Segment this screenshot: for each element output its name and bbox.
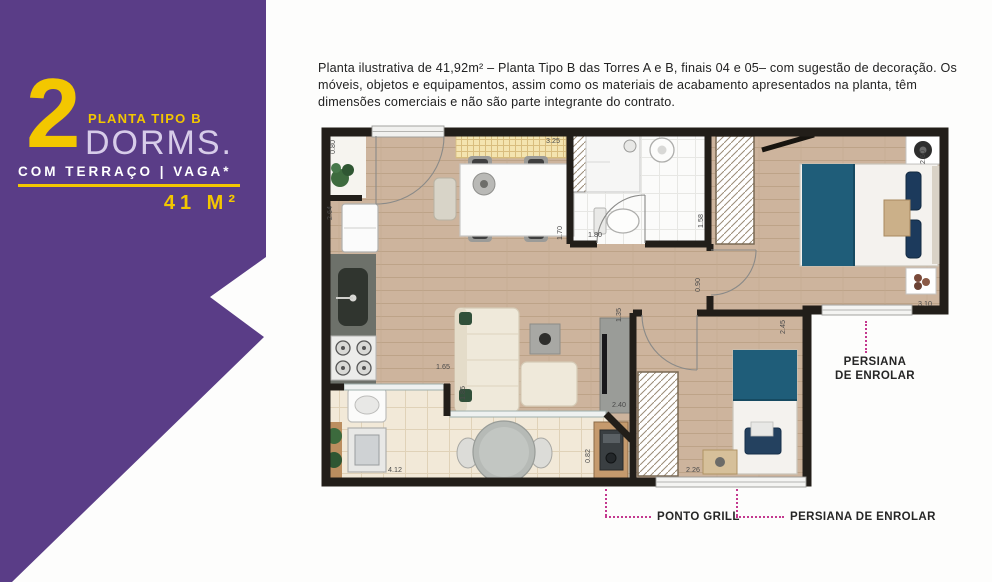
banner-subtitle: COM TERRAÇO | VAGA* bbox=[18, 164, 240, 179]
fridge bbox=[342, 204, 378, 252]
dorm-count: 2 bbox=[26, 64, 81, 162]
shower-head bbox=[624, 140, 636, 152]
dimension-label: 2.40 bbox=[612, 400, 626, 409]
wardrobe-bedroom2 bbox=[638, 372, 678, 476]
annotation-line: DE ENROLAR bbox=[810, 369, 940, 383]
annotation-persiana-bottom: PERSIANA DE ENROLAR bbox=[790, 511, 936, 523]
washing-machine bbox=[348, 428, 386, 472]
dimension-label: 4.12 bbox=[388, 465, 402, 474]
dimension-label: 0.90 bbox=[693, 278, 702, 292]
dimension-label: 1.58 bbox=[696, 214, 705, 228]
annotation-persiana-right: PERSIANA DE ENROLAR bbox=[810, 355, 940, 383]
disclaimer-text: Planta ilustrativa de 41,92m² – Planta T… bbox=[318, 60, 978, 111]
flower-table bbox=[906, 268, 936, 294]
promo-banner: 2 PLANTA TIPO B DORMS. COM TERRAÇO | VAG… bbox=[0, 0, 266, 582]
coffee-table bbox=[530, 324, 560, 354]
dimension-label: 2.64 bbox=[325, 206, 334, 220]
dimension-label: 2.60 bbox=[918, 150, 927, 164]
leader-line-persiana-bottom bbox=[736, 489, 738, 516]
dimension-label: 1.85 bbox=[458, 386, 467, 400]
leader-line-persiana-right bbox=[865, 321, 867, 353]
dimension-label: 3.10 bbox=[918, 299, 932, 308]
single-bed bbox=[733, 350, 797, 474]
annotation-ponto-grill: PONTO GRILL bbox=[657, 511, 740, 523]
dimension-label: 1.70 bbox=[555, 226, 564, 240]
stove bbox=[331, 336, 376, 380]
dimension-label: 1.65 bbox=[436, 362, 450, 371]
leader-line-ponto-grill bbox=[605, 516, 651, 518]
dimension-label: 0.82 bbox=[583, 449, 592, 463]
leader-line-persiana-bottom bbox=[736, 516, 784, 518]
dimension-label: 3.25 bbox=[546, 136, 560, 145]
leader-line-ponto-grill bbox=[605, 489, 607, 516]
wardrobe-master bbox=[716, 136, 754, 244]
annotation-line: PERSIANA bbox=[810, 355, 940, 369]
master-bed bbox=[800, 164, 940, 266]
tv-panel bbox=[600, 318, 630, 413]
area-label: 41 M² bbox=[18, 192, 240, 215]
dimension-label: 2.26 bbox=[686, 465, 700, 474]
dorms-title: DORMS. bbox=[85, 124, 233, 163]
dimension-label: 0.80 bbox=[328, 140, 337, 154]
shower-glass bbox=[572, 134, 586, 192]
banner-divider bbox=[18, 184, 240, 187]
laundry-sink bbox=[348, 388, 386, 422]
desk-bedroom2 bbox=[703, 450, 737, 474]
dimension-label: 1.35 bbox=[614, 308, 623, 322]
dimension-label: 2.45 bbox=[778, 320, 787, 334]
floor-plan: 0.803.252.602.641.701.801.580.903.101.35… bbox=[318, 122, 958, 494]
dimension-label: 1.80 bbox=[588, 230, 602, 239]
